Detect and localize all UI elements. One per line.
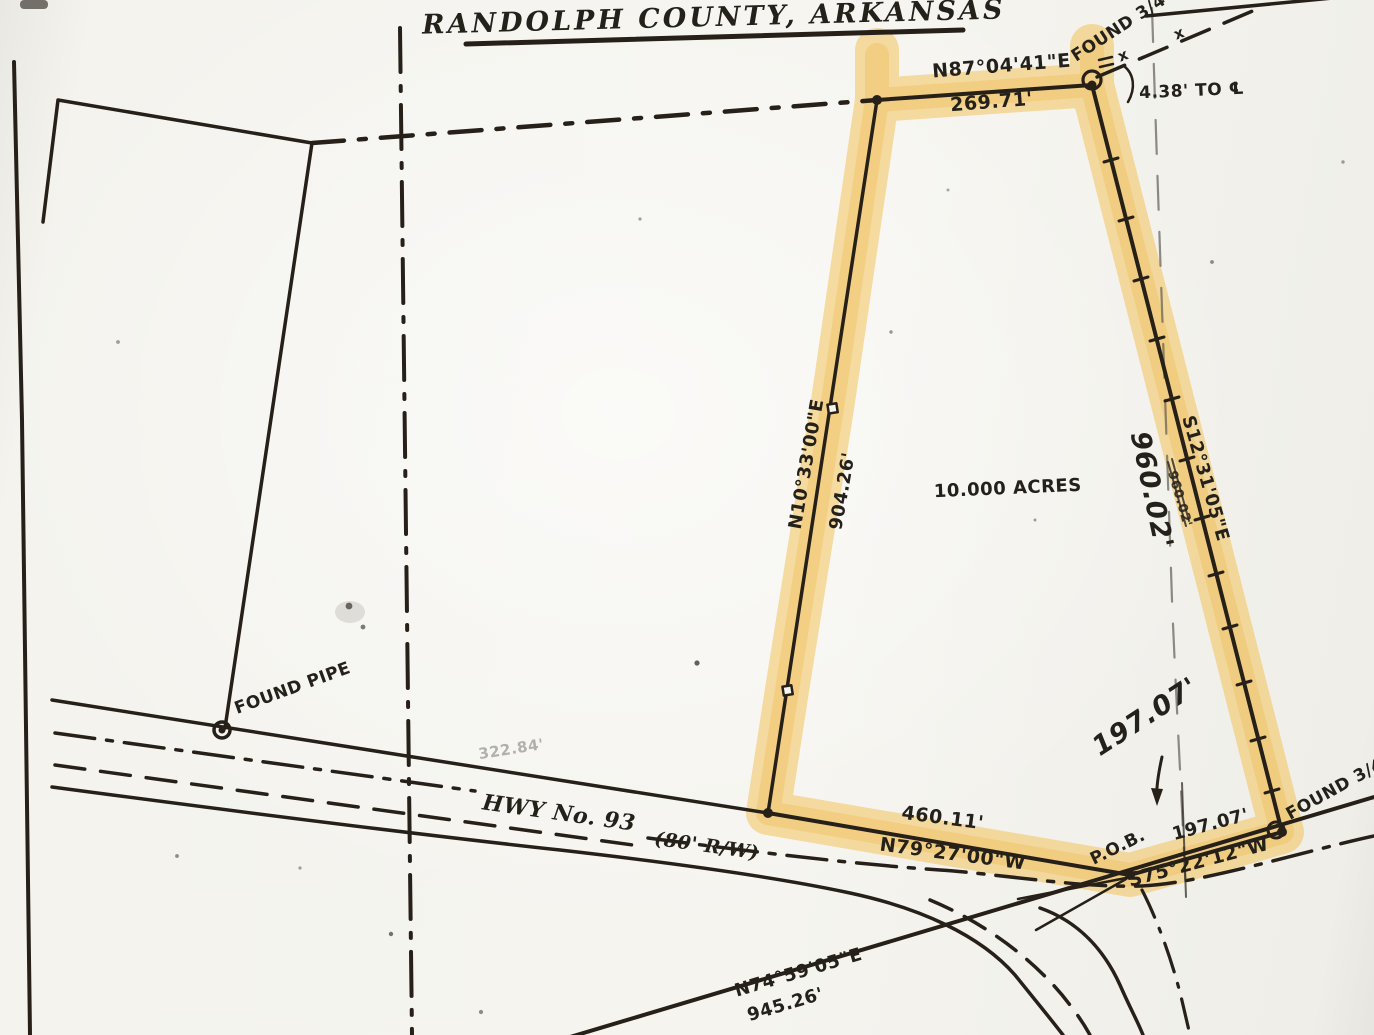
adjoining-tract-lines [14, 62, 312, 1035]
left-boundary-line [14, 62, 30, 1035]
quarter-section-line-vertical [400, 28, 412, 1035]
corner-dot-sw [763, 808, 773, 818]
west-polygon-line [43, 100, 312, 728]
faint-distance-label: 322.84' [477, 735, 545, 763]
west-line-monument-square-1 [827, 403, 837, 413]
side-road-centerline [1142, 890, 1190, 1035]
west-line-monument-square-2 [782, 685, 792, 695]
hwy-centerline-west [55, 733, 475, 791]
hwy-north-row-line [52, 700, 768, 813]
side-road-inner-curve [1040, 908, 1143, 1035]
fence-line-upper [1146, 0, 1374, 16]
title-block: RANDOLPH COUNTY, ARKANSAS [421, 0, 1006, 44]
southeast-distance-handwritten: 197.07' [1087, 671, 1204, 762]
tie-leader-bracket [1124, 66, 1133, 102]
highway-row-label: (80' R/W) [653, 828, 760, 864]
found-pipe-dot [219, 727, 226, 734]
tie-note-label: 4.38' TO ℄ [1139, 79, 1245, 104]
handwritten-197-arrowhead [1151, 788, 1163, 806]
survey-plat-page: RANDOLPH COUNTY, ARKANSAS N87°04'41"E 26… [0, 0, 1374, 1035]
corner-dot-nw [872, 95, 882, 105]
highway-labels: HWY No. 93 (80' R/W) N74°59'05"E 945.26'… [477, 735, 864, 1026]
highway-name-label: HWY No. 93 [480, 789, 637, 836]
area-label: 10.000 ACRES [933, 475, 1082, 502]
plat-drawing: RANDOLPH COUNTY, ARKANSAS N87°04'41"E 26… [0, 0, 1374, 1035]
parcel-west-line [768, 100, 877, 813]
found-pipe-label: FOUND PIPE [232, 658, 353, 719]
sixteenth-line-dashed [312, 100, 877, 143]
fence-x-mark-2: x [1171, 23, 1187, 44]
fence-x-mark-1: x [1115, 45, 1131, 66]
